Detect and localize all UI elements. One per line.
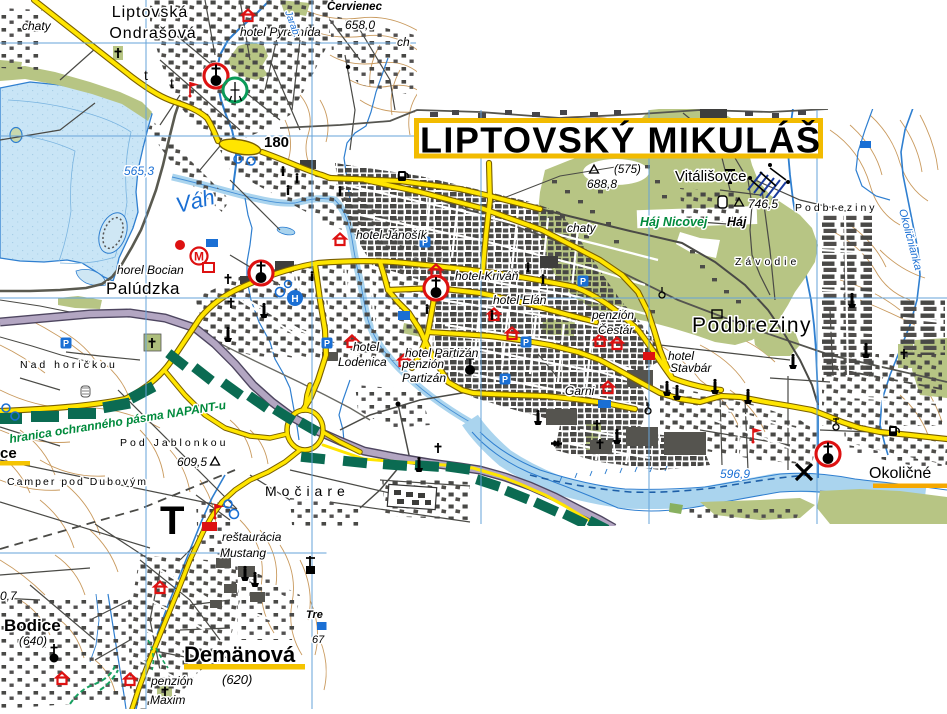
svg-text:hotel Kriváň: hotel Kriváň [455, 269, 519, 283]
svg-text:Stavbár: Stavbár [670, 361, 712, 375]
svg-text:M: M [194, 250, 204, 264]
svg-text:Háj: Háj [727, 215, 747, 229]
svg-text:565,3: 565,3 [124, 164, 154, 178]
svg-text:180: 180 [264, 134, 289, 151]
svg-text:Okoličné: Okoličné [869, 465, 931, 482]
svg-text:Lodenica: Lodenica [338, 355, 387, 369]
svg-text:Maxim: Maxim [150, 693, 185, 707]
svg-text:Mustang: Mustang [220, 546, 266, 560]
svg-text:(575): (575) [614, 164, 641, 176]
svg-text:609,5: 609,5 [177, 455, 207, 469]
svg-text:reštaurácia: reštaurácia [222, 530, 282, 544]
svg-text:Palúdzka: Palúdzka [106, 279, 180, 298]
svg-text:Podbreziny: Podbreziny [795, 202, 878, 214]
svg-text:(640): (640) [19, 634, 47, 648]
svg-text:Bodice: Bodice [4, 616, 61, 635]
svg-text:Partizán: Partizán [402, 371, 446, 385]
svg-text:t: t [170, 75, 174, 91]
svg-text:H: H [291, 294, 298, 305]
svg-text:658,0: 658,0 [345, 18, 375, 32]
svg-text:chaty: chaty [22, 19, 52, 33]
svg-text:ch: ch [397, 35, 410, 49]
svg-text:Závodie: Závodie [735, 256, 800, 268]
svg-text:746,5: 746,5 [748, 197, 778, 211]
svg-text:(620): (620) [222, 672, 252, 687]
svg-text:horel Bocian: horel Bocian [117, 263, 184, 277]
svg-text:Močiare: Močiare [265, 483, 350, 499]
svg-text:688,8: 688,8 [587, 177, 617, 191]
svg-text:chaty: chaty [567, 221, 597, 235]
svg-text:0,7: 0,7 [0, 589, 18, 603]
svg-text:hotel: hotel [353, 340, 379, 354]
svg-text:Tre: Tre [306, 609, 323, 621]
svg-text:67: 67 [312, 634, 325, 646]
svg-text:Podbreziny: Podbreziny [692, 314, 812, 337]
svg-text:Nad horičkou: Nad horičkou [20, 359, 118, 371]
svg-text:Čestár: Čestár [598, 322, 634, 337]
svg-text:Camper pod Dubovým: Camper pod Dubovým [7, 476, 148, 488]
svg-text:penzión: penzión [401, 357, 444, 371]
svg-text:T: T [160, 499, 184, 543]
svg-text:t: t [144, 67, 148, 83]
svg-text:ce: ce [0, 445, 17, 462]
svg-text:hotel Jánošík: hotel Jánošík [356, 228, 428, 242]
svg-text:596,9: 596,9 [720, 467, 750, 481]
svg-text:Háj Nicovej: Háj Nicovej [640, 215, 708, 229]
svg-text:Pod Jablonkou: Pod Jablonkou [120, 437, 228, 449]
svg-text:Ondrašová: Ondrašová [109, 25, 196, 42]
svg-text:Liptovská: Liptovská [112, 4, 189, 21]
svg-text:LIPTOVSKÝ MIKULÁŠ: LIPTOVSKÝ MIKULÁŠ [420, 119, 820, 161]
svg-text:penzión: penzión [150, 674, 193, 688]
svg-text:Garni: Garni [565, 384, 595, 398]
svg-text:Vitálišovce: Vitálišovce [675, 168, 746, 185]
svg-text:hotel Elán: hotel Elán [493, 293, 547, 307]
svg-text:Červienec: Červienec [327, 0, 383, 13]
svg-text:Demänová: Demänová [184, 642, 296, 667]
svg-text:penzión: penzión [591, 308, 634, 322]
svg-text:hotel Pyramída: hotel Pyramída [240, 25, 321, 39]
